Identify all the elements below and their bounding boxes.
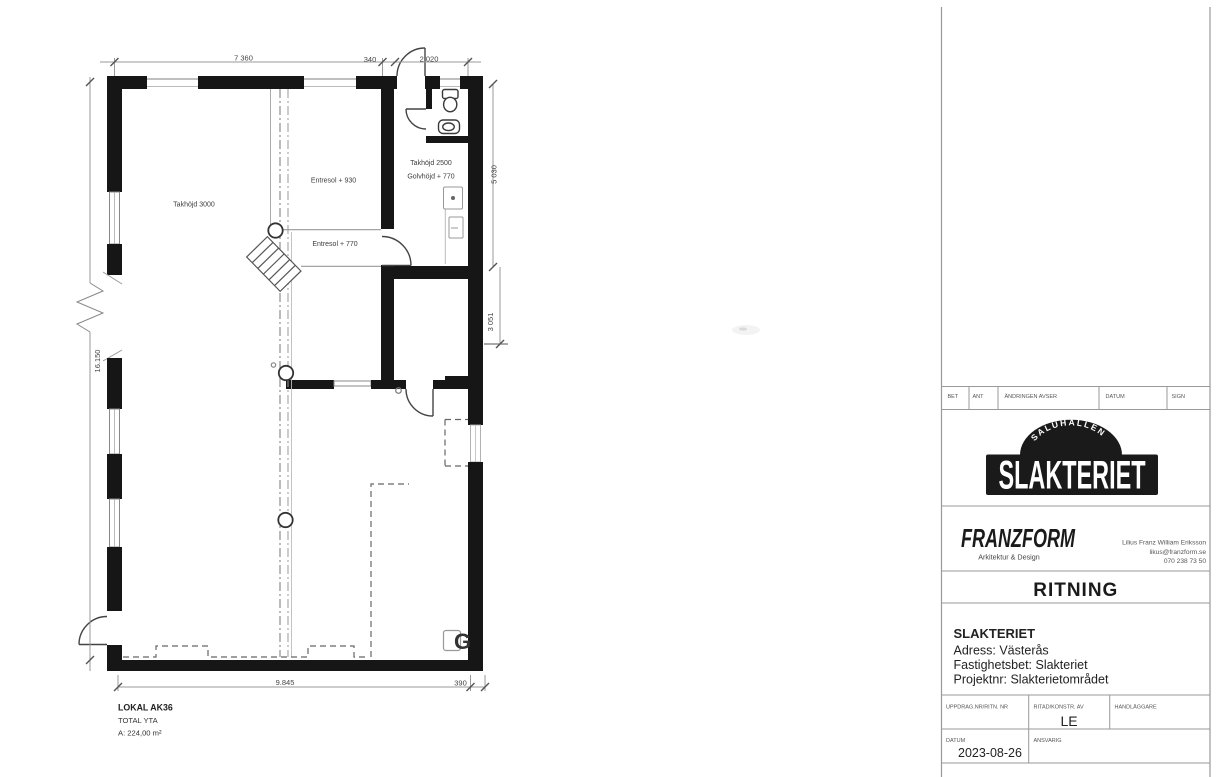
svg-text:ÄNDRINGEN AVSER: ÄNDRINGEN AVSER bbox=[1005, 393, 1057, 400]
svg-text:DATUM: DATUM bbox=[946, 738, 966, 744]
svg-text:Lilius Franz William Eriksson: Lilius Franz William Eriksson bbox=[1122, 540, 1206, 547]
svg-text:Arkitektur & Design: Arkitektur & Design bbox=[978, 553, 1040, 562]
svg-text:TOTAL YTA: TOTAL YTA bbox=[118, 716, 159, 725]
svg-text:5 030: 5 030 bbox=[490, 165, 499, 184]
svg-text:Takhöjd 3000: Takhöjd 3000 bbox=[173, 202, 215, 209]
svg-text:DATUM: DATUM bbox=[1106, 394, 1126, 400]
svg-text:Takhöjd 2500: Takhöjd 2500 bbox=[410, 160, 452, 167]
svg-text:A: 224,00 m²: A: 224,00 m² bbox=[118, 729, 162, 738]
svg-text:SLAKTERIET: SLAKTERIET bbox=[954, 626, 1036, 641]
svg-text:Golvhöjd + 770: Golvhöjd + 770 bbox=[407, 174, 454, 181]
svg-text:ANSVARIG: ANSVARIG bbox=[1034, 738, 1062, 744]
svg-text:7 360: 7 360 bbox=[234, 54, 253, 63]
svg-text:likus@franzform.se: likus@franzform.se bbox=[1149, 549, 1206, 556]
svg-text:FRANZFORM: FRANZFORM bbox=[961, 523, 1076, 553]
svg-text:G: G bbox=[454, 629, 471, 654]
svg-text:Entresol + 770: Entresol + 770 bbox=[312, 241, 357, 248]
svg-text:390: 390 bbox=[454, 679, 467, 688]
svg-text:2 020: 2 020 bbox=[420, 55, 439, 64]
svg-text:070 238 73 50: 070 238 73 50 bbox=[1164, 558, 1207, 565]
svg-text:Projektnr: Slakterietområdet: Projektnr: Slakterietområdet bbox=[954, 673, 1109, 687]
svg-text:Entresol + 930: Entresol + 930 bbox=[311, 178, 356, 185]
svg-text:340: 340 bbox=[364, 55, 377, 64]
svg-text:LOKAL AK36: LOKAL AK36 bbox=[118, 703, 173, 713]
svg-text:HANDLÄGGARE: HANDLÄGGARE bbox=[1115, 704, 1158, 711]
svg-text:LE: LE bbox=[1060, 713, 1077, 729]
svg-text:ANT: ANT bbox=[973, 394, 985, 400]
svg-text:BET: BET bbox=[948, 394, 959, 400]
svg-text:2023-08-26: 2023-08-26 bbox=[958, 746, 1022, 760]
svg-text:SIGN: SIGN bbox=[1172, 394, 1185, 400]
svg-text:9.845: 9.845 bbox=[276, 678, 295, 687]
svg-text:3 051: 3 051 bbox=[486, 313, 495, 332]
svg-text:UPPDRAG.NR/RITN. NR: UPPDRAG.NR/RITN. NR bbox=[946, 705, 1008, 711]
svg-text:RITAD/KONSTR. AV: RITAD/KONSTR. AV bbox=[1034, 705, 1085, 711]
svg-text:RITNING: RITNING bbox=[1033, 580, 1118, 601]
svg-text:SLAKTERIET: SLAKTERIET bbox=[999, 454, 1146, 498]
svg-text:16.150: 16.150 bbox=[93, 350, 102, 373]
svg-text:Fastighetsbet: Slakteriet: Fastighetsbet: Slakteriet bbox=[954, 658, 1089, 672]
svg-text:Adress: Västerås: Adress: Västerås bbox=[954, 644, 1049, 658]
